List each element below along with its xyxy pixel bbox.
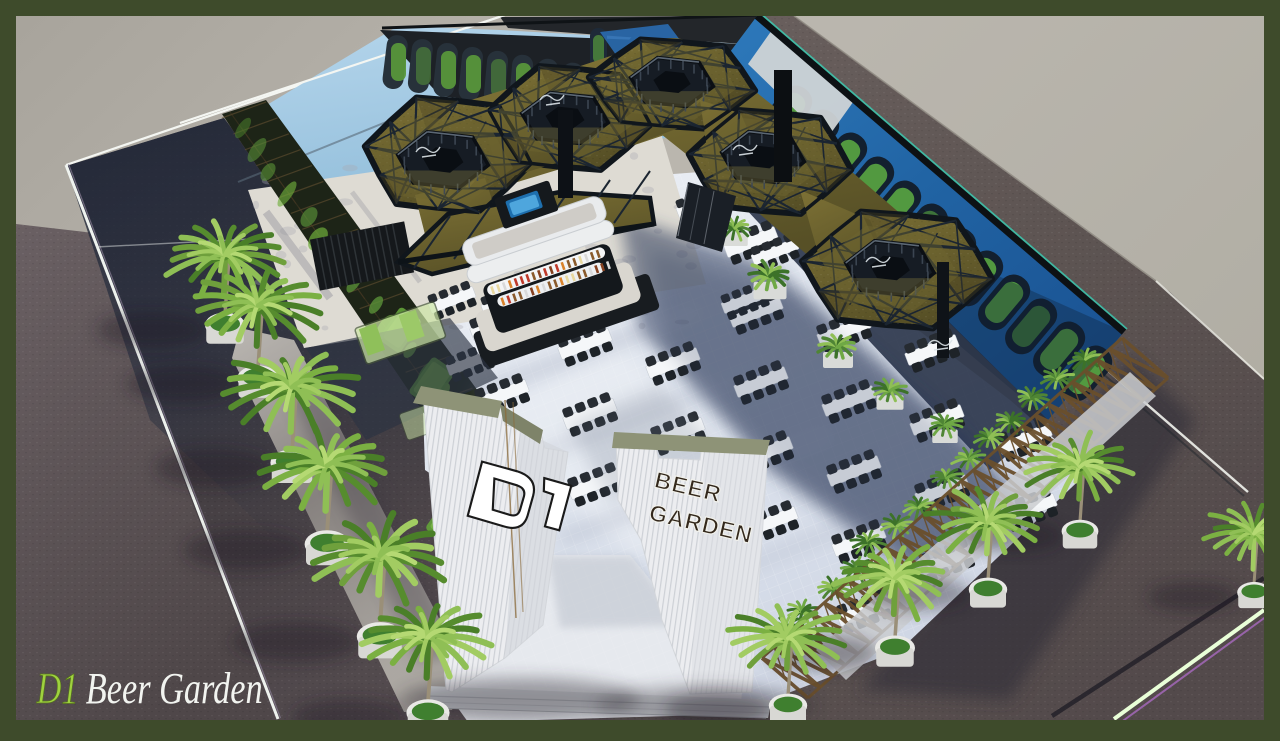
svg-text:Beer Garden: Beer Garden	[86, 664, 263, 713]
svg-text:D1: D1	[36, 664, 79, 713]
